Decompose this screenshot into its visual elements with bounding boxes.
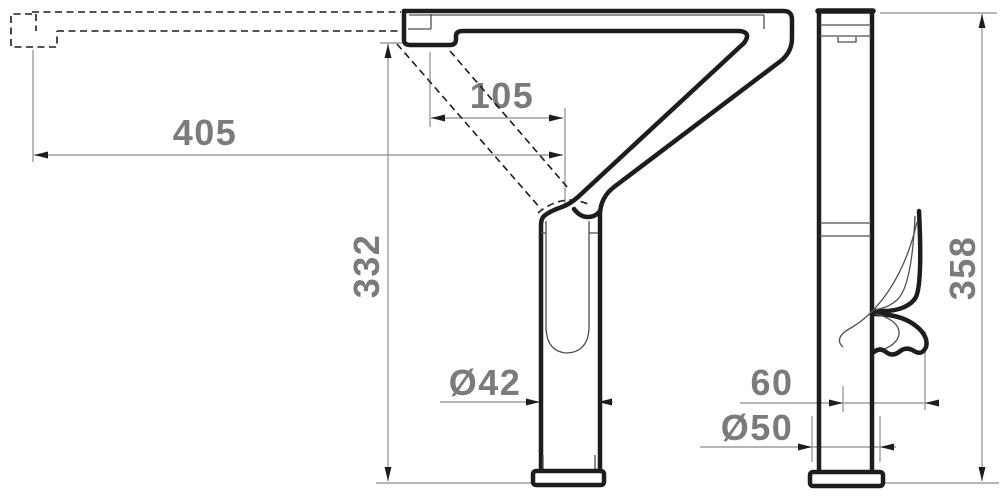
side-column-inner-lines <box>543 455 595 470</box>
spray-head-inner-lines <box>408 14 431 29</box>
dim-spout-offset-label: 105 <box>470 75 535 116</box>
front-cap-lines <box>820 25 871 36</box>
arrow-down-icon <box>385 467 392 481</box>
dim-column-diameter-label: Ø42 <box>449 362 522 403</box>
dim-total-height-label: 358 <box>942 236 983 301</box>
dimension-total-height: 358 <box>942 14 986 481</box>
front-view <box>810 11 927 486</box>
arrow-right-icon <box>526 399 540 406</box>
dashed-spray-head <box>11 14 57 47</box>
side-lever-profile <box>541 221 598 353</box>
handle-body-inner-curves <box>876 314 899 349</box>
dim-spout-height-label: 332 <box>346 234 387 299</box>
arrow-right-icon <box>829 400 843 407</box>
technical-drawing-canvas: 405 105 332 Ø42 358 <box>0 0 1006 496</box>
arrow-left-icon <box>925 400 939 407</box>
arrow-up-icon <box>979 14 986 28</box>
dimension-graphics: 405 105 332 Ø42 358 <box>33 13 999 483</box>
dimension-reach: 405 <box>34 112 563 159</box>
spout-inner-top-line <box>409 15 764 29</box>
front-ring-lines <box>820 223 871 236</box>
dim-reach-label: 405 <box>173 112 238 153</box>
handle-body-outline <box>874 314 927 355</box>
arrow-left-icon <box>34 152 48 159</box>
arrow-right-icon <box>549 115 563 122</box>
dimension-base-diameter: Ø50 <box>700 407 896 451</box>
arrow-down-icon <box>979 467 986 481</box>
dimension-spout-height: 332 <box>346 44 392 481</box>
dimension-column-diameter: Ø42 <box>440 362 613 406</box>
dimension-spout-offset: 105 <box>431 75 563 122</box>
arrow-up-icon <box>385 44 392 58</box>
dim-base-diameter-label: Ø50 <box>721 407 794 448</box>
front-cap-notch <box>838 37 856 42</box>
arrow-right-icon <box>549 152 563 159</box>
handle-blade-outer-edge <box>874 211 920 311</box>
swivel-joint-line <box>574 209 599 217</box>
side-base-flange <box>533 471 604 485</box>
technical-drawing-page: 405 105 332 Ø42 358 <box>0 0 1006 496</box>
arrow-left-icon <box>880 444 894 451</box>
dim-handle-offset-label: 60 <box>750 362 793 403</box>
arrow-left-icon <box>431 115 445 122</box>
front-base-flange <box>810 472 883 486</box>
dimension-handle-offset: 60 <box>740 362 939 407</box>
dashed-neck-outer-line <box>397 44 541 209</box>
arrow-right-icon <box>798 444 812 451</box>
handle-blade-inner-contour <box>874 216 915 310</box>
